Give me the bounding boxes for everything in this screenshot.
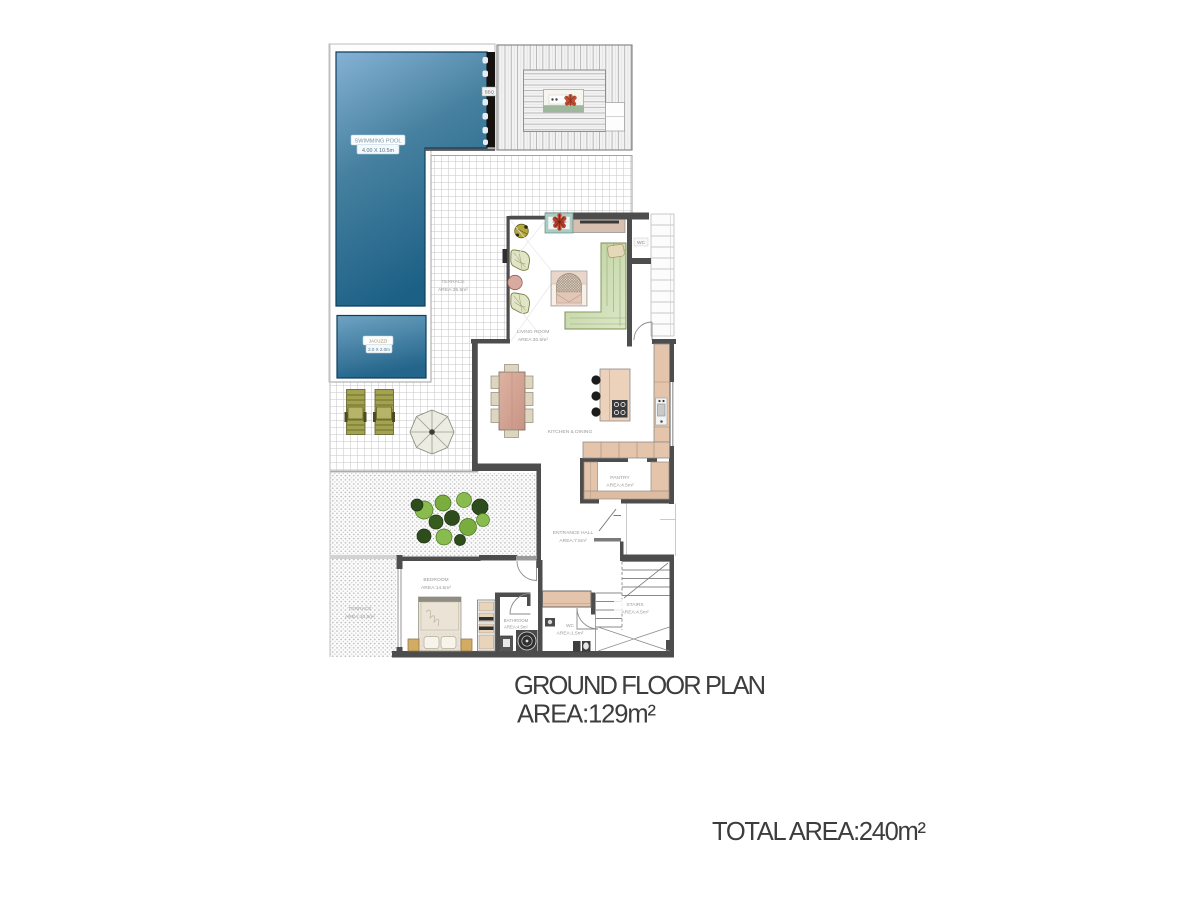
svg-text:2.0 X 2.0m: 2.0 X 2.0m	[368, 347, 390, 352]
svg-text:WC: WC	[637, 240, 646, 246]
svg-text:JACUZZI: JACUZZI	[369, 339, 388, 344]
svg-text:STAIRS: STAIRS	[626, 602, 644, 608]
svg-text:PANTRY: PANTRY	[610, 475, 630, 481]
svg-text:AREA:1.5m²: AREA:1.5m²	[557, 631, 584, 637]
svg-text:TERRACE: TERRACE	[441, 279, 465, 285]
svg-text:BEDROOM: BEDROOM	[423, 577, 448, 583]
svg-text:BATHROOM: BATHROOM	[504, 618, 529, 623]
svg-text:SWIMMING POOL: SWIMMING POOL	[355, 139, 402, 145]
svg-text:AREA:4.5m²: AREA:4.5m²	[504, 625, 528, 630]
svg-text:LIVING ROOM: LIVING ROOM	[517, 329, 550, 335]
svg-text:WC: WC	[566, 623, 575, 629]
svg-text:AREA:129m²: AREA:129m²	[517, 701, 656, 729]
svg-text:AREA:14.5m²: AREA:14.5m²	[421, 585, 451, 591]
svg-text:AREA:30.5m²: AREA:30.5m²	[518, 337, 548, 343]
svg-text:AREA:10.5m²: AREA:10.5m²	[345, 614, 375, 620]
svg-text:TOTAL AREA:240m²: TOTAL AREA:240m²	[712, 818, 926, 846]
svg-text:4.00 X 10.5m: 4.00 X 10.5m	[362, 148, 395, 154]
svg-text:AREA:4.5m²: AREA:4.5m²	[606, 483, 634, 489]
svg-text:ENTRANCE HALL: ENTRANCE HALL	[553, 530, 594, 536]
svg-text:BBQ: BBQ	[485, 90, 495, 95]
svg-text:TERRACE: TERRACE	[348, 606, 372, 612]
svg-text:AREA:7.5m²: AREA:7.5m²	[559, 538, 587, 544]
svg-text:AREA:4.5m²: AREA:4.5m²	[621, 610, 649, 616]
svg-text:GROUND FLOOR PLAN: GROUND FLOOR PLAN	[514, 672, 766, 700]
svg-text:AREA:35.5m²: AREA:35.5m²	[438, 287, 468, 293]
svg-text:KITCHEN & DINING: KITCHEN & DINING	[548, 429, 593, 435]
